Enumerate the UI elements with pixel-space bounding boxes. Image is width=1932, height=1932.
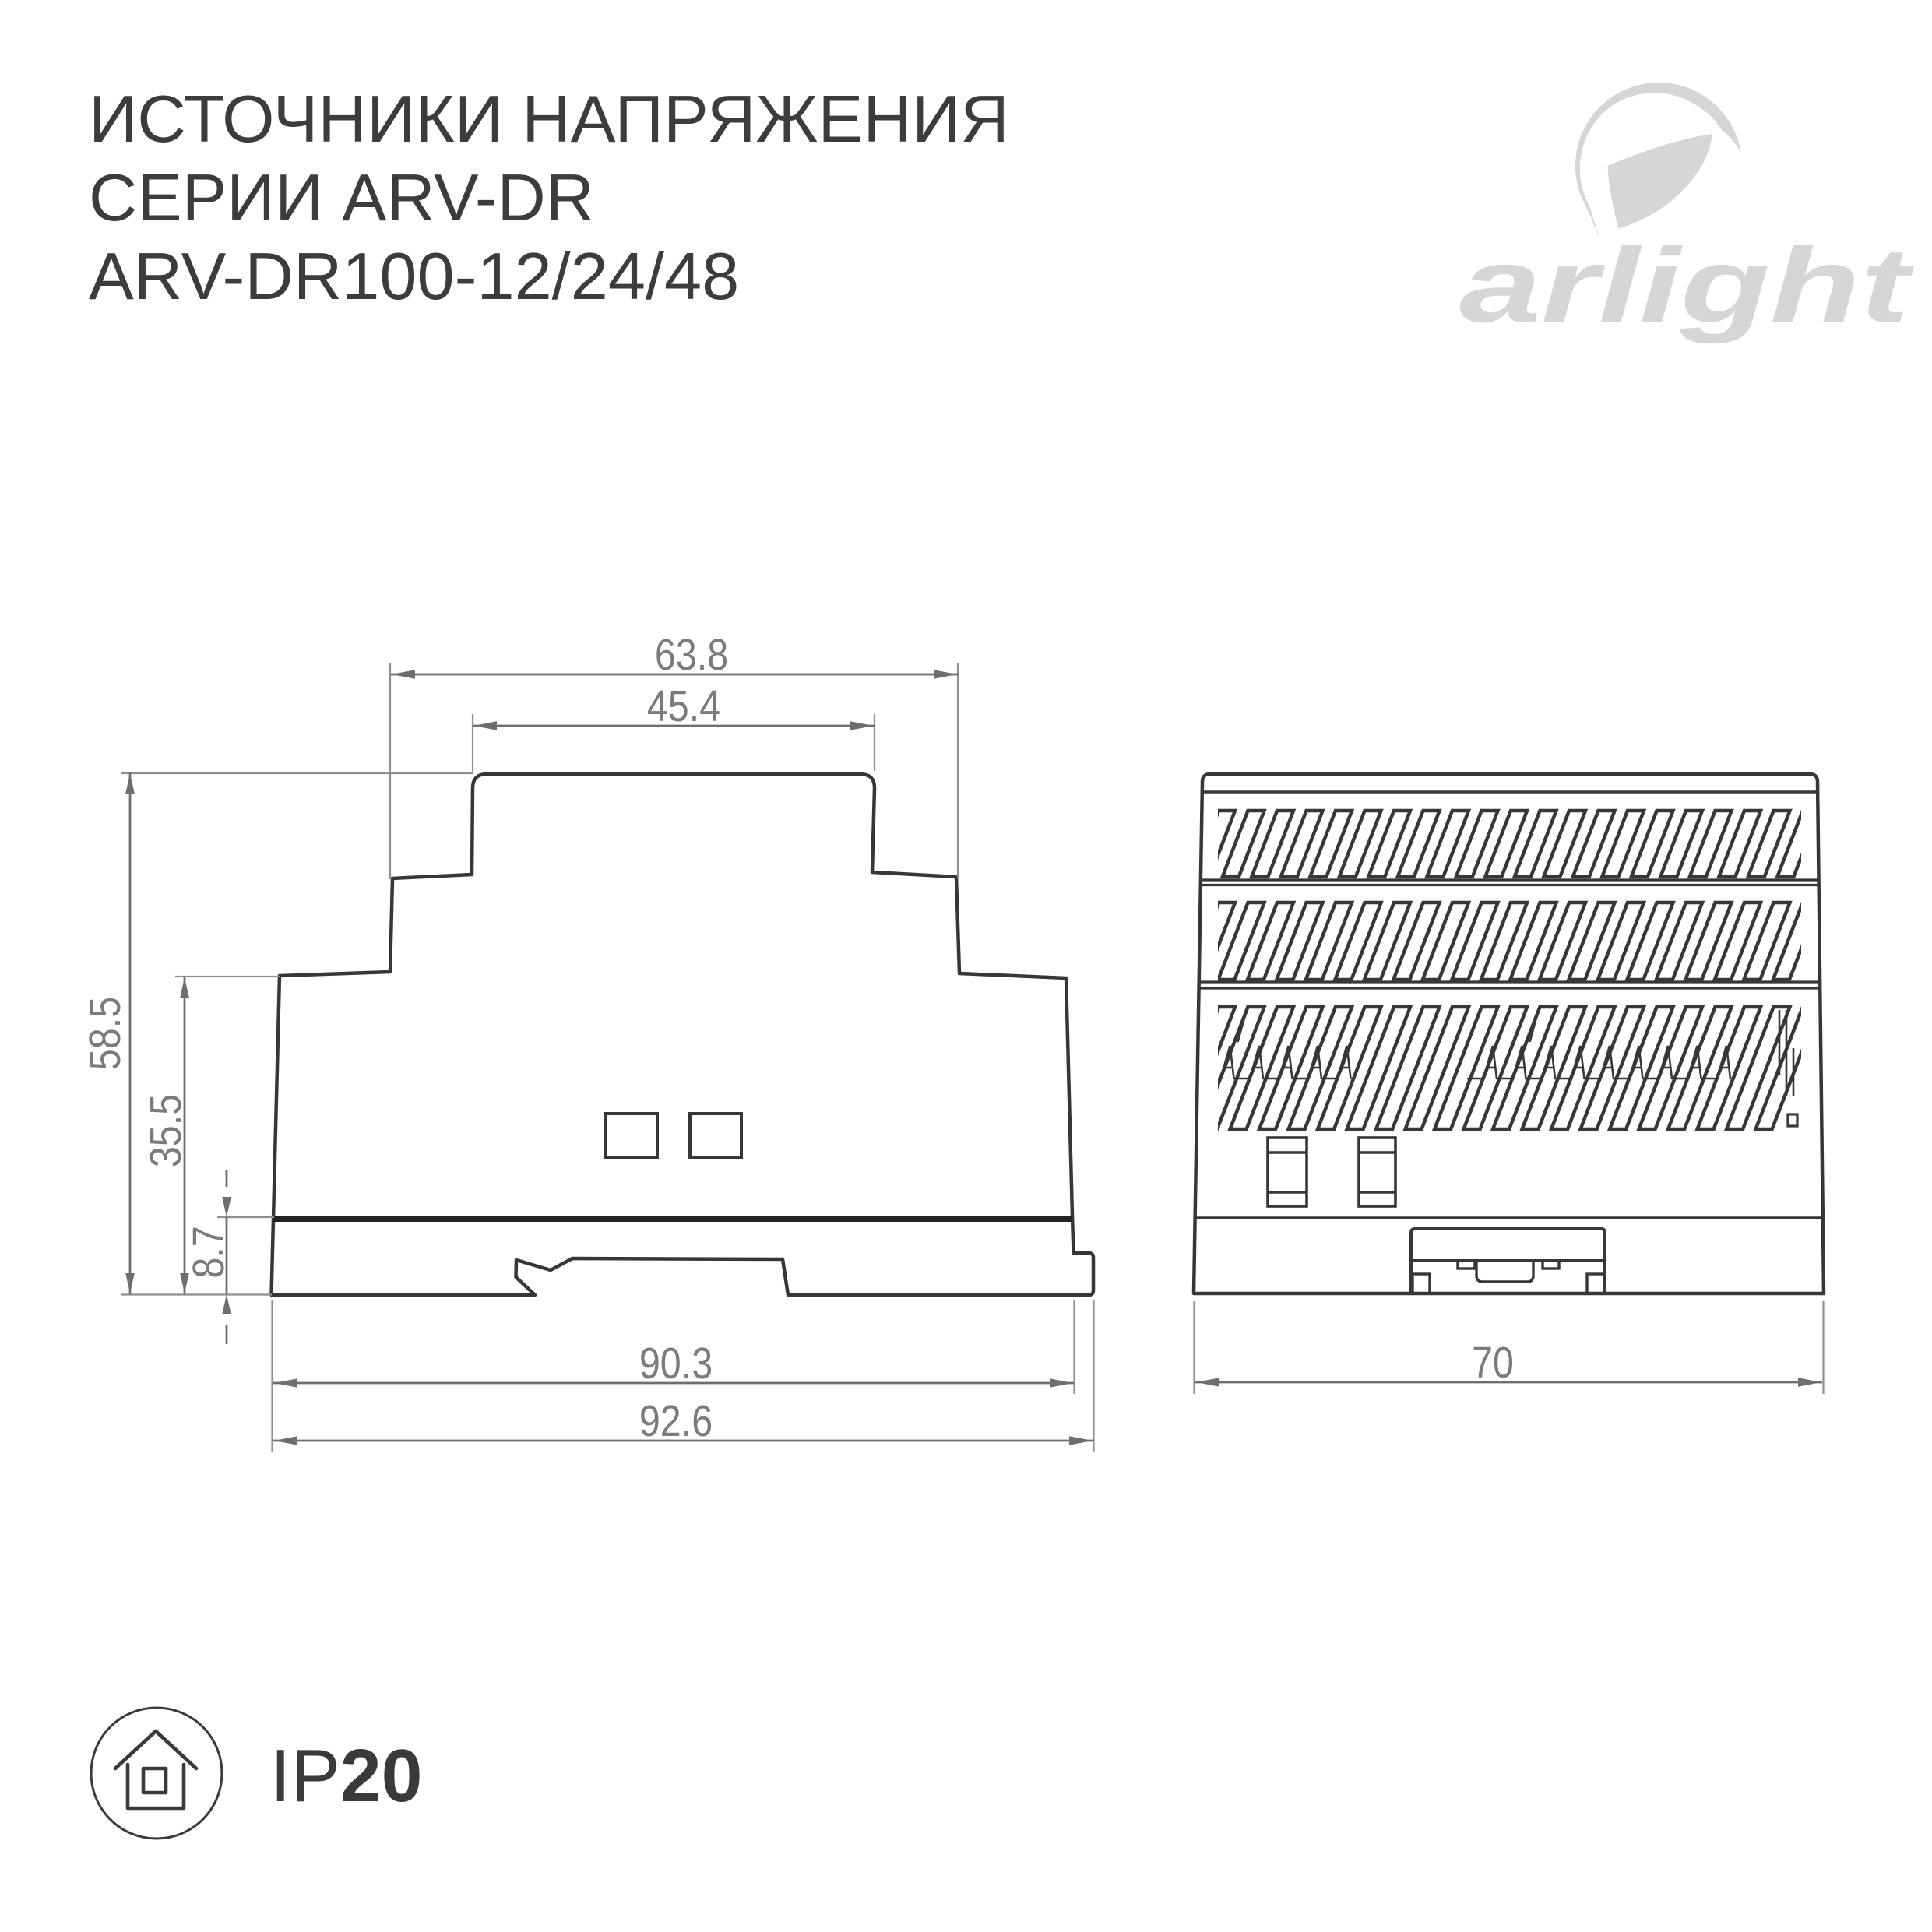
svg-text:ARV-DR100-12/24/48: ARV-DR100-12/24/48	[89, 240, 739, 314]
svg-text:92.6: 92.6	[639, 1396, 713, 1446]
svg-text:35.5: 35.5	[141, 1094, 191, 1167]
svg-text:63.8: 63.8	[655, 630, 728, 680]
svg-text:45.4: 45.4	[647, 681, 720, 731]
svg-text:arlight: arlight	[1459, 226, 1915, 344]
svg-text:8.7: 8.7	[184, 1226, 234, 1278]
svg-text:СЕРИИ ARV-DR: СЕРИИ ARV-DR	[89, 162, 594, 235]
svg-text:ИСТОЧНИКИ НАПРЯЖЕНИЯ: ИСТОЧНИКИ НАПРЯЖЕНИЯ	[89, 83, 1009, 157]
svg-text:70: 70	[1472, 1338, 1514, 1388]
svg-text:90.3: 90.3	[639, 1339, 713, 1388]
svg-text:58.5: 58.5	[80, 997, 130, 1070]
svg-text:IP20: IP20	[270, 1735, 423, 1818]
